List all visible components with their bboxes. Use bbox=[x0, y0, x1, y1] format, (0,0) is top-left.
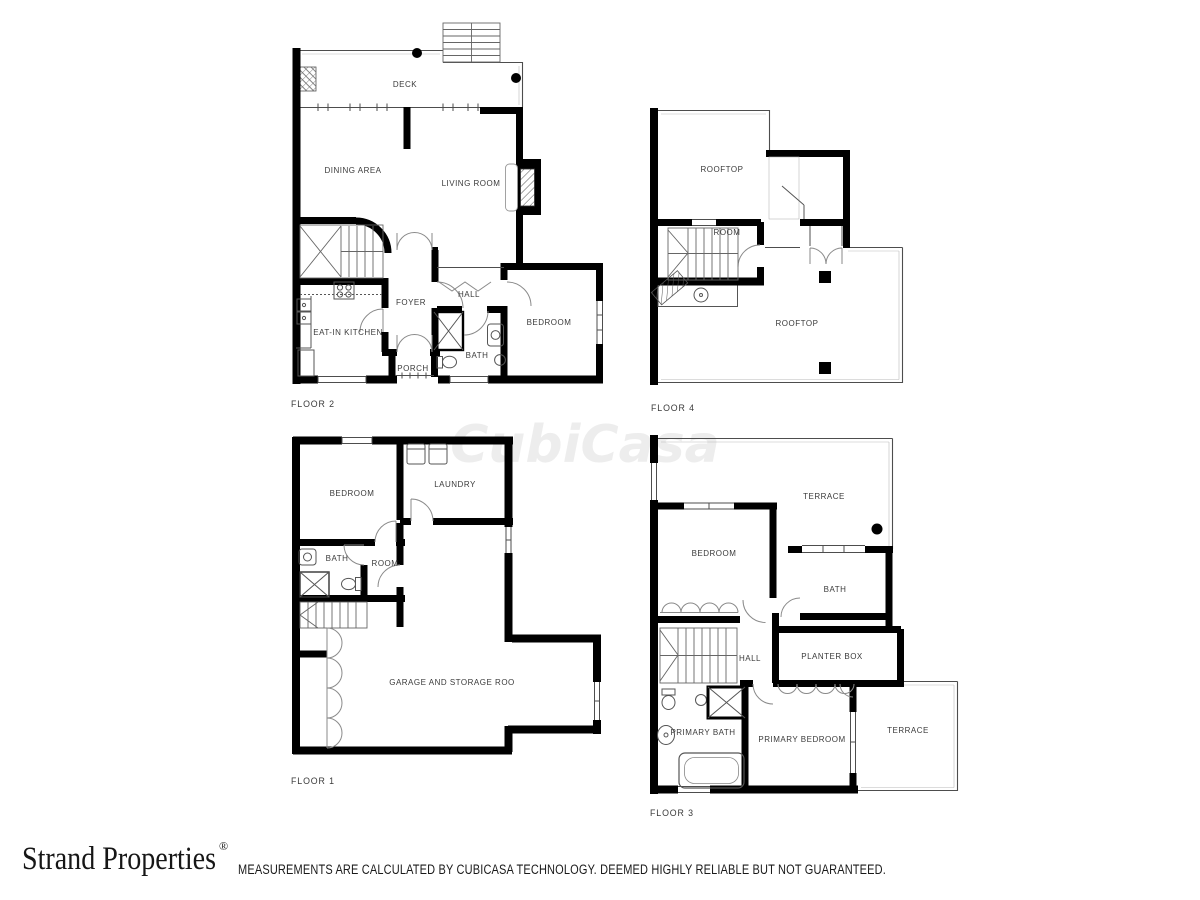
room-label-primary-bath: PRIMARY BATH bbox=[670, 728, 735, 737]
room-label-rooftop-upper: ROOFTOP bbox=[701, 165, 744, 174]
room-label-room: ROOM bbox=[372, 559, 399, 568]
floor-3-label: FLOOR 3 bbox=[650, 808, 694, 818]
room-label-bath: BATH bbox=[824, 585, 847, 594]
rooftop-post-icon bbox=[819, 362, 831, 374]
room-label-deck: DECK bbox=[393, 80, 417, 89]
terrace-post-icon bbox=[872, 524, 883, 535]
room-label-living-room: LIVING ROOM bbox=[442, 179, 501, 188]
room-label-dining-area: DINING AREA bbox=[324, 166, 381, 175]
floorplan-sheet: CubiCasa bbox=[0, 0, 1200, 900]
room-label-eat-in-kitchen: EAT-IN KITCHEN bbox=[313, 328, 383, 337]
room-label-porch: PORCH bbox=[397, 364, 428, 373]
room-label-terrace-upper: TERRACE bbox=[803, 492, 845, 501]
room-label-foyer: FOYER bbox=[396, 298, 426, 307]
room-label-hall: HALL bbox=[739, 654, 761, 663]
cubicasa-watermark: CubiCasa bbox=[450, 415, 720, 475]
room-label-bath: BATH bbox=[466, 351, 489, 360]
room-label-bedroom: BEDROOM bbox=[527, 318, 572, 327]
room-label-planter-box: PLANTER BOX bbox=[801, 652, 863, 661]
floor-1-label: FLOOR 1 bbox=[291, 776, 335, 786]
room-label-bedroom: BEDROOM bbox=[330, 489, 375, 498]
room-label-laundry: LAUNDRY bbox=[434, 480, 476, 489]
room-label-garage: GARAGE AND STORAGE ROO bbox=[389, 678, 515, 687]
floorplan-canvas: CubiCasa bbox=[0, 0, 1200, 900]
rooftop-post-icon bbox=[819, 271, 831, 283]
registered-mark: ® bbox=[219, 839, 228, 853]
brand-logo: Strand Properties bbox=[22, 841, 216, 877]
floor-4-label: FLOOR 4 bbox=[651, 403, 695, 413]
deck-post-icon bbox=[511, 73, 521, 83]
room-label-terrace-lower: TERRACE bbox=[887, 726, 929, 735]
room-label-bedroom: BEDROOM bbox=[692, 549, 737, 558]
room-label-bath: BATH bbox=[326, 554, 349, 563]
grill-icon bbox=[298, 67, 316, 91]
deck-post-icon bbox=[412, 48, 422, 58]
room-label-rooftop-lower: ROOFTOP bbox=[776, 319, 819, 328]
room-label-hall: HALL bbox=[458, 290, 480, 299]
disclaimer-text: MEASUREMENTS ARE CALCULATED BY CUBICASA … bbox=[238, 862, 886, 877]
fireplace-icon bbox=[506, 159, 542, 215]
room-label-primary-bedroom: PRIMARY BEDROOM bbox=[758, 735, 845, 744]
room-label-room: ROOM bbox=[714, 228, 741, 237]
floor-2-label: FLOOR 2 bbox=[291, 399, 335, 409]
